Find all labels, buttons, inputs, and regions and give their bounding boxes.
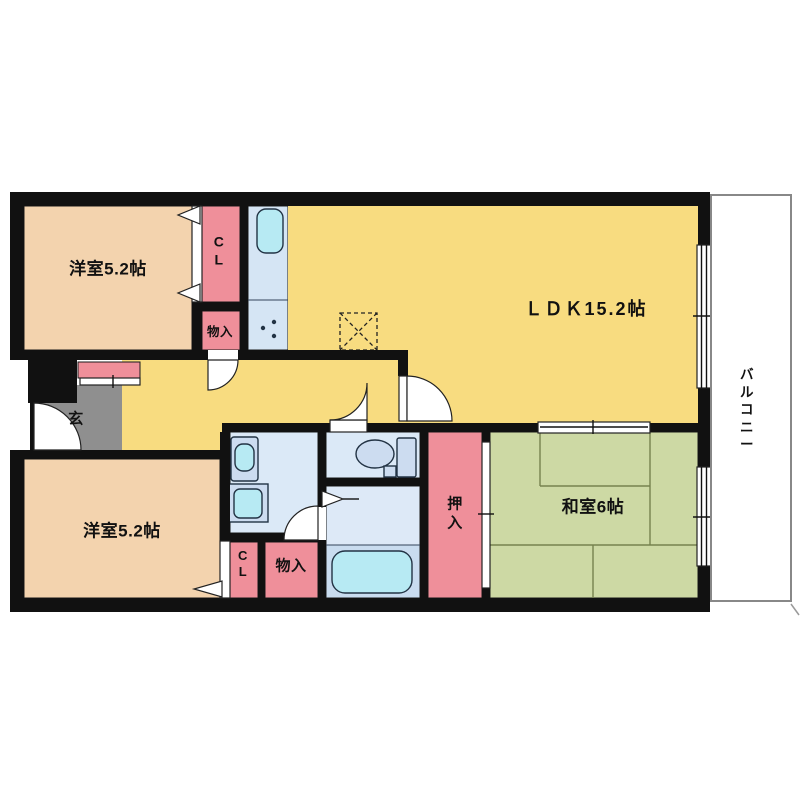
washing-machine [234,489,262,518]
label-balcony: バ ル コ ニ ー [740,366,754,454]
room-bathroom-floor [326,486,420,545]
wall-oshiire-stub-bottom [482,588,490,598]
label-bedroom-bottom: 洋室5.2帖 [83,520,161,541]
wall-right-1 [698,192,710,245]
wall-monoire-bath [318,540,326,598]
toilet-tank [397,438,416,477]
label-storage-bottom: 物入 [275,558,306,577]
label-washitsu: 和室6帖 [562,496,624,517]
wall-bedroom-bottom-top [10,450,230,459]
wall-corridor-3 [650,423,710,432]
ldk-door-leaf [399,376,407,421]
label-ldk: ＬＤＫ15.2帖 [524,298,647,321]
wall-left-lower [10,450,24,612]
wall-cl-monoire-divider [258,542,265,598]
wall-stub-ldk-door [398,360,408,376]
washitsu-sliding-doors [538,420,650,434]
label-closet-top: C L [214,234,225,269]
toilet-bowl [356,440,394,468]
floor-plan-drawing [0,0,800,800]
wall-top [10,192,710,206]
stove-burner-dot [261,326,265,330]
wall-corridor-2 [367,423,538,432]
wall-bottom [10,598,710,612]
wall-oshiire-stub-top [482,432,490,442]
floor-plan: 洋室5.2帖 ＬＤＫ15.2帖 洋室5.2帖 和室6帖 押 入 C L C L … [0,0,800,800]
label-closet-bottom: C L [238,548,248,581]
label-storage-top: 物入 [207,325,233,341]
washbasin-bowl [235,444,254,471]
wall-corridor-1 [222,423,330,432]
wall-right-3 [698,566,710,612]
stove-burner-dot [272,320,276,324]
shoe-cabinet [78,362,140,378]
kitchen-sink [257,209,283,253]
label-genkan: 玄 [68,411,84,430]
bathroom-door-gap [318,507,326,540]
label-oshiire: 押 入 [447,495,463,533]
wall-left-upper [10,192,24,360]
stove-burner-dot [272,334,276,338]
wall-bedroom-washroom [220,432,230,541]
storage-top-door-gap [208,350,238,360]
corner-mark [791,604,799,615]
label-bedroom-top: 洋室5.2帖 [69,258,147,279]
wall-bath-oshiire [420,432,428,598]
wall-closet-divider [192,302,240,311]
toilet-base [384,466,396,477]
wall-entry-block [28,358,77,403]
wall-closet-kitchen [240,206,248,350]
shoe-cabinet-front [80,378,140,385]
wall-toilet-bath [318,478,420,486]
toilet-door-leaf [330,420,367,432]
bathtub [332,551,412,593]
oshiire-fusuma-track [482,442,490,588]
